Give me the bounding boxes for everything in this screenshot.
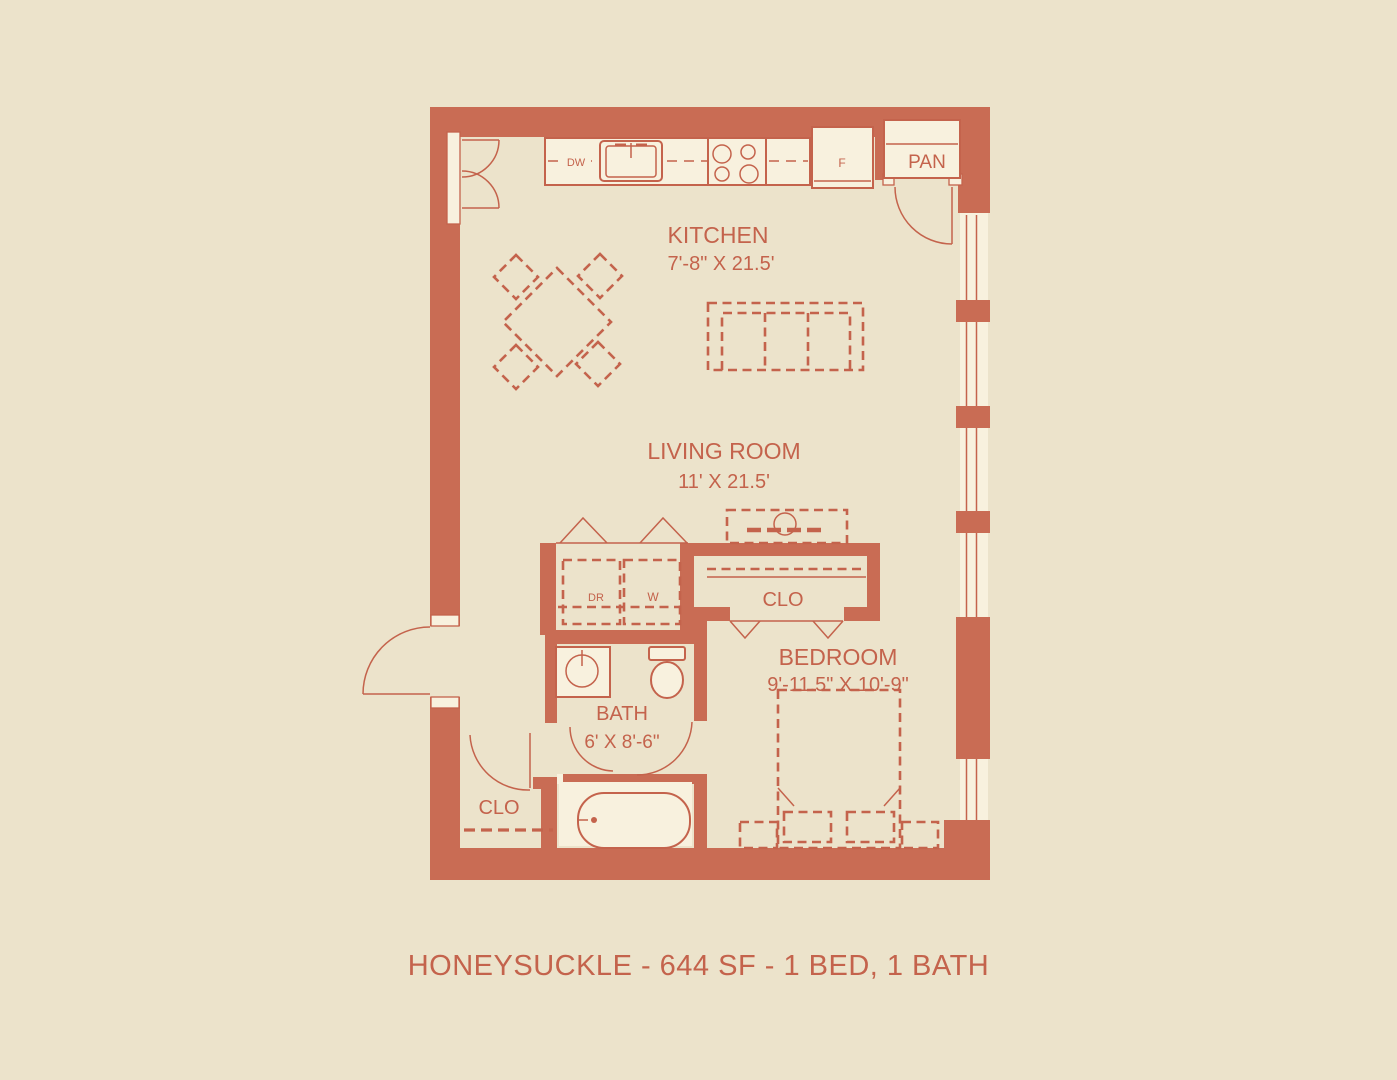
window-mullion xyxy=(956,300,990,322)
living-room-label: LIVING ROOM xyxy=(647,438,800,464)
bedroom-dims: 9'-11.5" X 10'-9" xyxy=(767,674,909,696)
dryer-label: DR xyxy=(588,592,604,604)
pillow xyxy=(784,812,831,842)
plan-title: HONEYSUCKLE - 644 SF - 1 BED, 1 BATH xyxy=(0,950,1397,983)
washer-label: W xyxy=(647,590,659,604)
wall-laundry-divider xyxy=(680,543,694,635)
double-door-recess xyxy=(447,132,460,224)
pantry-door-swing xyxy=(895,187,952,244)
media-console xyxy=(727,510,847,543)
dining-chair xyxy=(578,254,622,298)
toilet-bowl xyxy=(651,662,683,698)
living-room-dims: 11' X 21.5' xyxy=(678,471,770,493)
kitchen-dims: 7'-8" X 21.5' xyxy=(667,253,774,275)
tub-faucet-icon xyxy=(591,817,597,823)
wall-bed-divider-upper xyxy=(694,621,707,721)
wall-bath-top xyxy=(545,630,707,644)
dining-table xyxy=(503,268,611,376)
wall-closet-bottom-left xyxy=(694,607,730,621)
pillow xyxy=(847,812,894,842)
pantry-label: PAN xyxy=(908,152,946,173)
refrigerator-label: F xyxy=(838,156,845,170)
wall-laundry-left xyxy=(540,543,556,635)
wall-closet-top xyxy=(680,543,880,556)
dishwasher-label: DW xyxy=(567,157,586,169)
wall-right-top xyxy=(958,107,990,213)
tv-icon-detail xyxy=(774,513,796,535)
hall-closet-door-swing xyxy=(470,735,530,790)
floor-plan-canvas: KITCHEN 7'-8" X 21.5' LIVING ROOM 11' X … xyxy=(0,0,1397,1080)
bed-fold-mark xyxy=(778,788,794,806)
bath-dims: 6' X 8'-6" xyxy=(584,732,659,753)
wall-hall-closet-block xyxy=(533,777,557,789)
toilet-tank xyxy=(649,647,685,660)
dining-chair xyxy=(576,342,620,386)
nightstand xyxy=(902,822,938,848)
window-mullion xyxy=(956,406,990,428)
window-mullion xyxy=(956,511,990,533)
entry-jamb-bottom xyxy=(431,697,459,708)
kitchen-label: KITCHEN xyxy=(668,222,769,248)
dining-chair xyxy=(494,345,538,389)
wall-closet-bottom-right xyxy=(844,607,880,621)
laundry-bifold-door xyxy=(560,518,607,543)
hall-closet-label: CLO xyxy=(478,797,519,819)
wall-bottom xyxy=(430,848,990,880)
closet-bifold-door xyxy=(730,621,760,638)
entry-jamb-top xyxy=(431,615,459,626)
nightstand xyxy=(740,822,777,848)
floor-plan-drawing: KITCHEN 7'-8" X 21.5' LIVING ROOM 11' X … xyxy=(0,0,1397,1080)
laundry-bifold-door xyxy=(640,518,687,543)
entry-door-swing xyxy=(363,627,430,694)
wall-right-mid xyxy=(956,617,990,759)
wall-right-corner xyxy=(944,820,990,880)
bed-fold-mark xyxy=(884,788,900,806)
dining-chair xyxy=(494,255,538,299)
wall-bed-divider-lower xyxy=(694,774,707,848)
bath-label: BATH xyxy=(596,703,648,725)
closet-bifold-door xyxy=(813,621,843,638)
bedroom-label: BEDROOM xyxy=(779,644,898,670)
sofa-back-arms xyxy=(722,313,850,370)
wall-hall-closet-right xyxy=(541,784,557,848)
bed xyxy=(778,690,900,848)
bedroom-closet-label: CLO xyxy=(762,589,803,611)
